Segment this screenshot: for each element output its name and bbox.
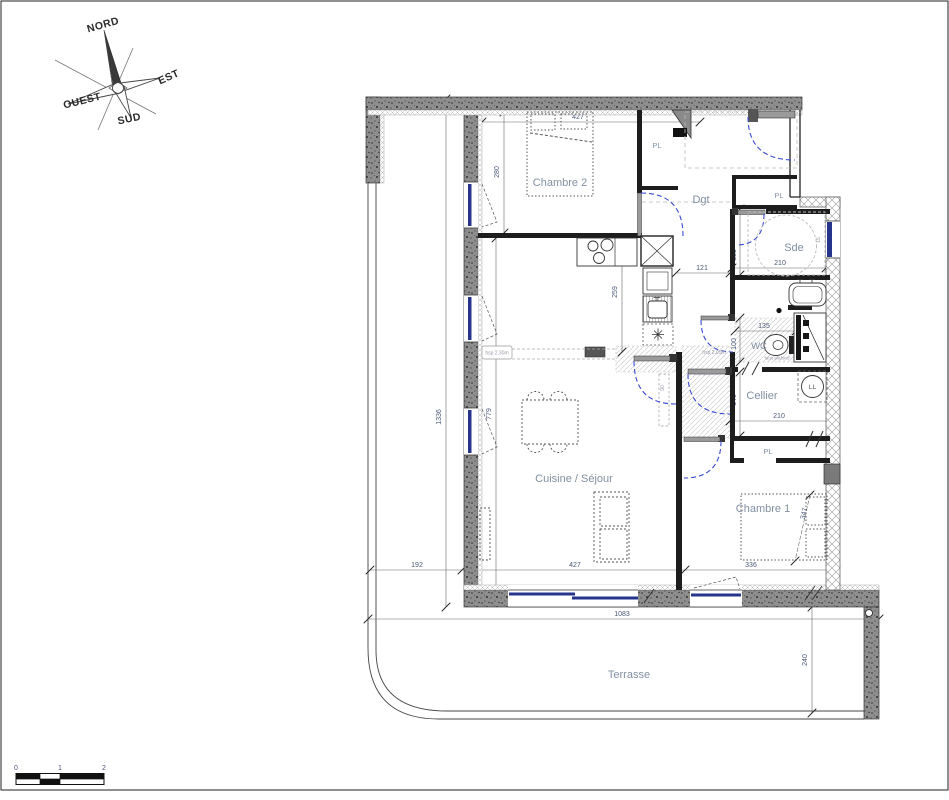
dim-wc-depth-label: 100 [731,338,738,350]
dim-sde-window-label: 15 [816,237,822,243]
washer-label: LL [809,384,817,391]
dim-chambre2-height: 280 [494,108,508,237]
label-sde: Sde [784,242,804,254]
dining-table [522,392,578,453]
dim-kitchen-passage-label: 121 [696,265,708,272]
dim-terrasse-depth: 240 [802,603,816,717]
dim-terrasse-width: 1083 [364,611,883,623]
door-cellier-marks [742,362,759,375]
dim-corridor-door-label: 90 [660,385,666,391]
dim-cellier-width-label: 210 [773,413,785,420]
dim-sejour-depth-label: 779 [486,408,493,420]
compass-east-label: EST [156,67,181,87]
fridge [641,236,673,266]
label-terrasse: Terrasse [608,669,650,681]
dim-chambre1-width-label: 336 [745,562,757,569]
compass-south-label: SUD [117,111,143,128]
entry-right-wall [790,110,800,197]
sink-unit [643,296,672,322]
dim-wc-width-label: 135 [758,323,770,330]
door-entrance [748,109,795,160]
dim-apt-height-label: 1336 [436,409,443,425]
terrace-drain [866,610,873,617]
dim-sejour-depth: 779 [486,234,500,594]
floor-plan: NORD EST OUEST SUD 1336 280 779 [0,0,949,800]
radiator-kitchen [585,347,605,357]
duct-shaft [794,313,826,362]
dim-sde-width-label: 210 [774,260,786,267]
door-chambre2 [638,193,684,236]
label-closet-dgt: PL [652,141,661,150]
dim-kitchen-depth-label: 259 [612,286,619,298]
hood-unit [643,324,673,345]
dim-cellier-width: 210 [726,413,834,425]
window-sde [826,221,840,258]
label-dgt: Dgt [692,194,709,206]
dim-chambre2-width: 427 [478,114,704,126]
scale-2: 2 [102,765,106,772]
scale-bar: 0 1 2 [14,765,106,785]
dim-bottom-chain: 192 427 336 [366,562,840,574]
window-chambre1 [690,577,742,607]
dim-chambre1-depth: 347 [791,491,814,565]
compass-rose: NORD EST OUEST SUD [55,15,181,130]
label-chambre1: Chambre 1 [736,503,790,515]
label-wc: WC [751,341,767,352]
dim-apt-height: 1336 [436,95,450,611]
oven-unit [643,268,672,294]
label-chambre2: Chambre 2 [533,177,587,189]
compass-north-needle [104,30,122,90]
compass-north-label: NORD [86,15,121,36]
dim-left-offset-label: 192 [411,562,423,569]
dim-sde-width: 210 [728,260,830,272]
wall-top [366,97,802,110]
door-sde [732,208,765,245]
faux-plafond-corridor-label: faux plafond [693,371,718,376]
exterior-walls [366,97,879,719]
wall-terrace-right [864,607,879,719]
dim-terrasse-depth-label: 240 [802,654,809,666]
washbasin [789,280,826,307]
sofa [594,492,629,562]
dimensions: 1336 280 779 427 121 259 [364,95,883,717]
scale-1: 1 [58,765,62,772]
hatch-corridor [682,346,730,438]
toilet [764,335,788,356]
hsp-sejour-label: hsp 2.30m [485,351,508,357]
dim-chambre1-depth-label: 347 [800,507,809,520]
kitchen-block [577,236,673,345]
kitchen-counter [577,238,637,266]
washing-machine: LL [798,371,827,402]
scale-0: 0 [14,765,18,772]
structural-column [824,464,840,484]
label-closet-entry: PL [774,191,783,200]
sliding-door-sejour [508,585,638,607]
dim-sejour-width-label: 427 [569,562,581,569]
dim-terrasse-width-label: 1083 [614,611,630,618]
hsp-corridor-label: hsp 2.05m [702,350,725,356]
faux-plafond-wc-label: faux plafond [764,356,789,361]
floor-drain [776,308,781,313]
label-cuisine-sejour: Cuisine / Séjour [535,473,613,485]
label-closet-chambre1: PL [763,447,772,456]
door-chambre1 [684,435,725,478]
label-cellier: Cellier [746,390,778,402]
compass-west-label: OUEST [62,91,103,112]
dim-kitchen-passage: 121 [672,265,734,277]
dim-chambre2-height-label: 280 [494,166,501,178]
